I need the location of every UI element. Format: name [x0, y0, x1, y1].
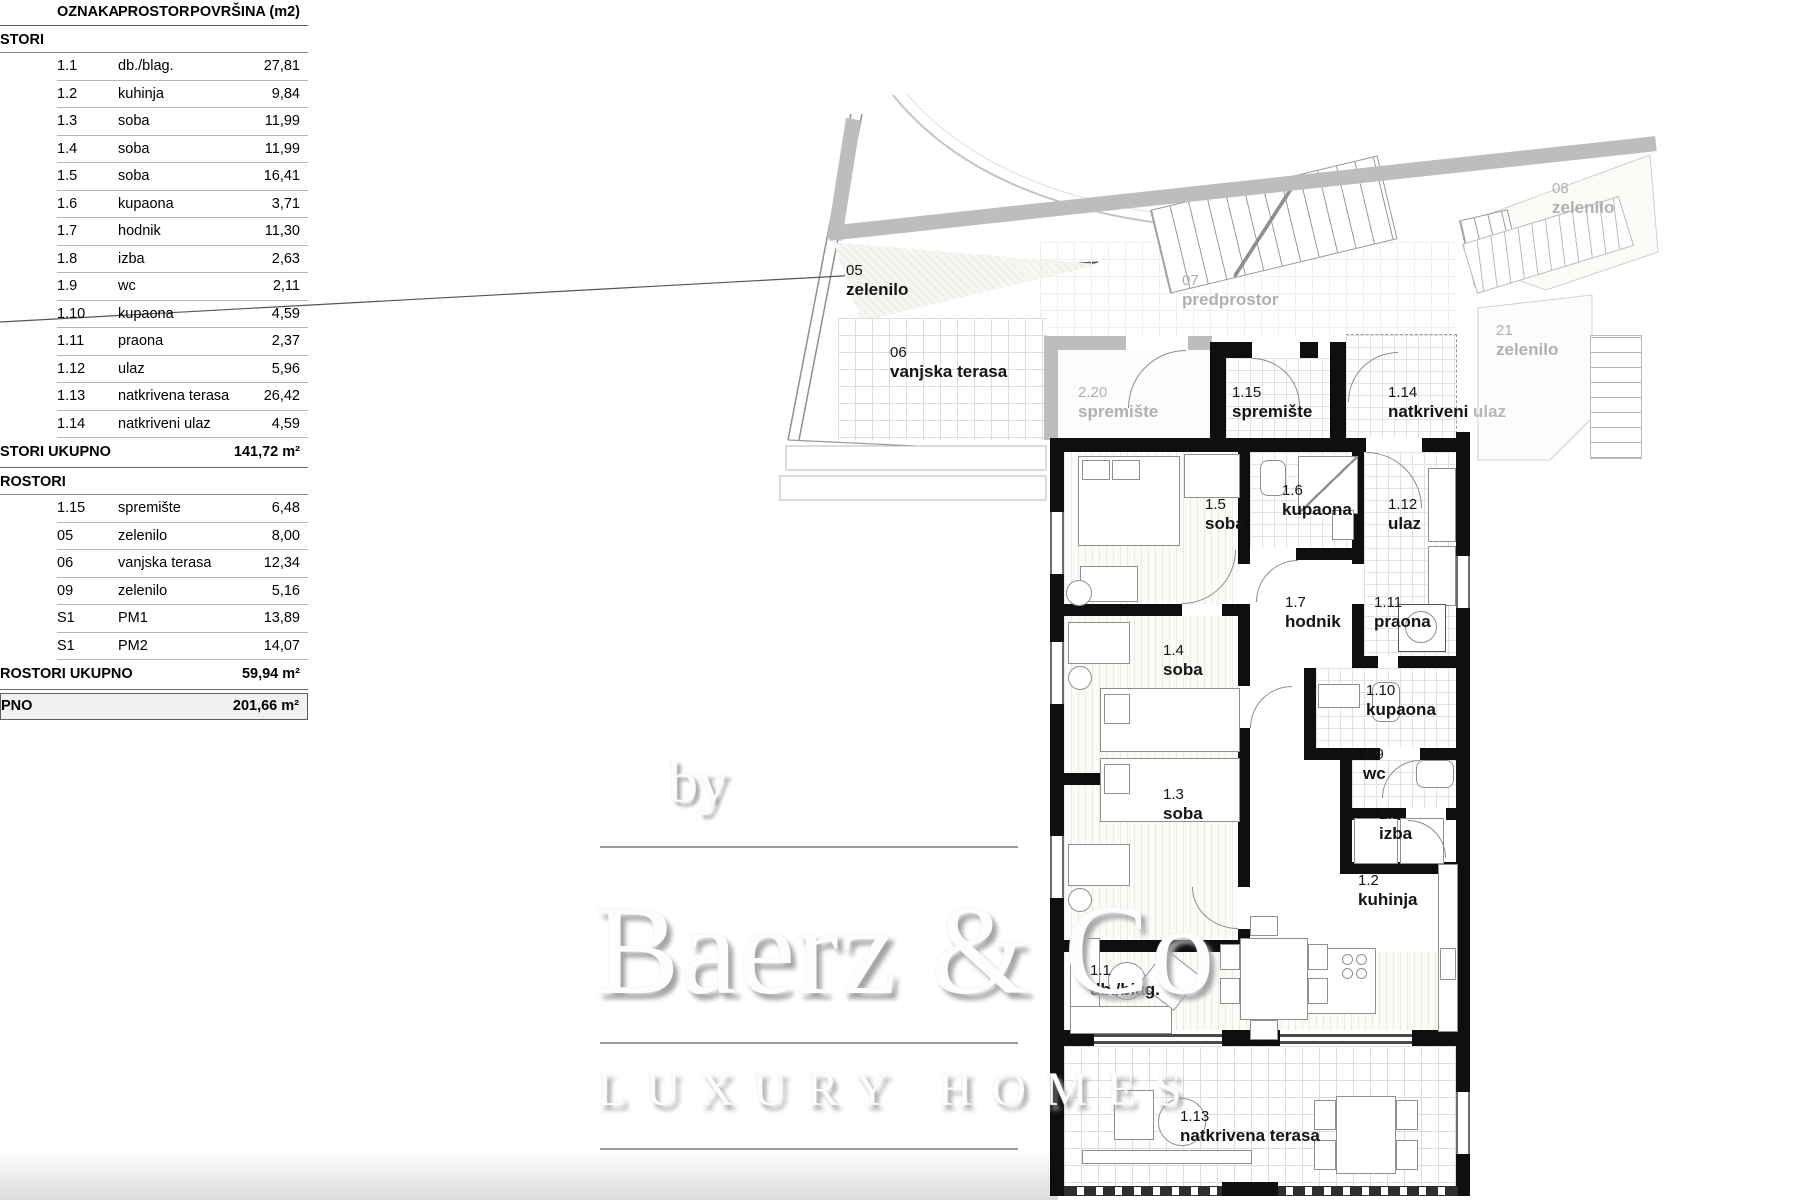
- cell-prostor: soba: [118, 136, 149, 164]
- section2-title: ROSTORI: [0, 468, 308, 495]
- furniture-dining-table: [1240, 938, 1308, 1020]
- room-code: 1.2: [1358, 872, 1418, 890]
- table-row: 1.2kuhinja9,84: [0, 81, 308, 109]
- grand-total-value: 201,66 m²: [233, 694, 299, 719]
- furniture-chair: [1220, 944, 1240, 970]
- header-oznaka: OZNAKA: [57, 4, 119, 20]
- cell-oznaka: 1.5: [57, 163, 77, 191]
- room-code: 1.8: [1379, 806, 1412, 824]
- section2-total-row: ROSTORI UKUPNO 59,94 m²: [0, 660, 308, 690]
- cell-povrsina: 27,81: [264, 53, 300, 81]
- table-row: 09zelenilo5,16: [0, 578, 308, 606]
- furniture-chair: [1220, 978, 1240, 1004]
- cell-povrsina: 11,30: [265, 218, 300, 246]
- door-gap: [1252, 342, 1300, 358]
- furniture-pillow: [1104, 694, 1130, 724]
- cell-oznaka: 1.1: [57, 53, 77, 81]
- room-name: spremište: [1232, 402, 1312, 421]
- cell-oznaka: 1.9: [57, 273, 77, 301]
- cell-oznaka: 09: [57, 578, 73, 606]
- wall-segment: [1364, 656, 1378, 668]
- table-header-row: OZNAKA PROSTOR POVRŠINA (m2): [0, 0, 308, 26]
- steps-right: [1590, 335, 1642, 459]
- furniture-desk: [1068, 622, 1130, 664]
- table-row: 1.1db./blag.27,81: [0, 53, 308, 81]
- room-name: zelenilo: [1496, 340, 1558, 359]
- cell-prostor: zelenilo: [118, 523, 167, 551]
- cell-povrsina: 3,71: [272, 191, 300, 219]
- room-name: soba: [1163, 804, 1203, 823]
- room-code: 1.10: [1366, 682, 1436, 700]
- window-glazing: [1094, 1041, 1222, 1044]
- wall-segment: [1064, 604, 1182, 616]
- cell-oznaka: S1: [57, 633, 75, 661]
- wall-pier: [1412, 1030, 1470, 1046]
- cell-oznaka: 1.13: [57, 383, 85, 411]
- furniture-desk: [1068, 844, 1130, 886]
- furniture-toilet: [1416, 760, 1454, 788]
- wall-segment: [1446, 808, 1456, 820]
- wall-segment: [1340, 760, 1352, 872]
- furniture-sink: [1318, 684, 1360, 708]
- cell-povrsina: 2,11: [273, 273, 300, 301]
- room-name: wc: [1363, 764, 1386, 783]
- room-code: 1.7: [1285, 594, 1341, 612]
- table-row: 06vanjska terasa12,34: [0, 550, 308, 578]
- room-label-21: 21zelenilo: [1496, 322, 1558, 361]
- cell-povrsina: 11,99: [265, 108, 300, 136]
- cell-oznaka: 1.14: [57, 411, 85, 439]
- grand-total-row: PNO 201,66 m²: [0, 693, 308, 720]
- cell-prostor: soba: [118, 163, 149, 191]
- cell-prostor: kupaona: [118, 301, 174, 329]
- room-label-14: 1.4soba: [1163, 642, 1203, 681]
- table-row: 1.13natkrivena terasa26,42: [0, 383, 308, 411]
- furniture-wardrobe: [1428, 468, 1456, 542]
- room-code: 1.6: [1282, 482, 1352, 500]
- room-label-07: 07predprostor: [1182, 272, 1278, 311]
- cell-prostor: natkriveni ulaz: [118, 411, 211, 439]
- room-code: 1.14: [1388, 384, 1506, 402]
- floorplan-page: { "table": { "headers": {"oznaka": "OZNA…: [0, 0, 1800, 1200]
- cell-prostor: ulaz: [118, 356, 145, 384]
- room-name: soba: [1205, 514, 1245, 533]
- room-name: spremište: [1078, 402, 1158, 421]
- furniture-sofa: [1070, 1006, 1172, 1034]
- cell-povrsina: 5,16: [272, 578, 300, 606]
- cell-prostor: hodnik: [118, 218, 161, 246]
- cell-oznaka: 1.15: [57, 495, 85, 523]
- header-povrsina: POVRŠINA (m2): [190, 4, 300, 20]
- room-name: natkrivena terasa: [1180, 1126, 1320, 1145]
- cell-prostor: kupaona: [118, 191, 174, 219]
- wall-segment: [1304, 668, 1316, 760]
- cell-prostor: wc: [118, 273, 136, 301]
- furniture-chair: [1396, 1100, 1418, 1130]
- cell-povrsina: 2,37: [272, 328, 300, 356]
- furniture-wardrobe: [1428, 546, 1456, 606]
- room-label-111: 1.11praona: [1374, 594, 1431, 633]
- window: [1050, 836, 1064, 898]
- furniture-chair: [1308, 944, 1328, 970]
- header-prostor: PROSTOR: [118, 4, 189, 20]
- cell-prostor: db./blag.: [118, 53, 174, 81]
- furniture-chair: [1250, 916, 1278, 936]
- room-label-12: 1.2kuhinja: [1358, 872, 1418, 911]
- cell-povrsina: 14,07: [264, 633, 300, 661]
- room-label-220: 2.20spremište: [1078, 384, 1158, 423]
- room-name-gray: ulaz: [1468, 402, 1506, 421]
- furniture-pillow: [1082, 460, 1110, 480]
- room-name: soba: [1163, 660, 1203, 679]
- cell-povrsina: 4,59: [272, 411, 300, 439]
- cell-oznaka: 1.3: [57, 108, 77, 136]
- cell-povrsina: 4,59: [272, 301, 300, 329]
- cell-prostor: PM1: [118, 605, 148, 633]
- table-row: 1.11praona2,37: [0, 328, 308, 356]
- room-label-17: 1.7hodnik: [1285, 594, 1341, 633]
- section2-total-value: 59,94 m²: [242, 660, 300, 689]
- furniture-wardrobe: [1184, 454, 1240, 498]
- gray-wall: [1044, 336, 1058, 440]
- furniture-chair: [1068, 666, 1092, 690]
- room-name: predprostor: [1182, 290, 1278, 309]
- cell-povrsina: 2,63: [272, 246, 300, 274]
- furniture-kitchen-sink: [1440, 948, 1456, 980]
- window: [1456, 1092, 1470, 1154]
- cell-prostor: kuhinja: [118, 81, 164, 109]
- window: [1050, 642, 1064, 704]
- wall-exterior-right: [1456, 432, 1470, 1056]
- wall-segment: [1222, 604, 1250, 616]
- room-label-15: 1.5soba: [1205, 496, 1245, 535]
- cell-prostor: izba: [118, 246, 145, 274]
- stove-burner: [1356, 968, 1367, 979]
- cell-oznaka: 05: [57, 523, 73, 551]
- room-name: db./blag.: [1090, 980, 1160, 999]
- cell-povrsina: 12,34: [264, 550, 300, 578]
- room-name: kuhinja: [1358, 890, 1418, 909]
- cell-oznaka: 1.4: [57, 136, 77, 164]
- table-row: 1.4soba11,99: [0, 136, 308, 164]
- table-row: 05zelenilo8,00: [0, 523, 308, 551]
- room-code: 07: [1182, 272, 1278, 290]
- room-name: izba: [1379, 824, 1412, 843]
- room-code: 05: [846, 262, 908, 280]
- wall-segment: [1352, 604, 1364, 668]
- room-label-13: 1.3soba: [1163, 786, 1203, 825]
- window: [1050, 512, 1064, 574]
- room-code: 1.1: [1090, 962, 1160, 980]
- wall-pier: [1222, 1182, 1278, 1196]
- room-name: vanjska terasa: [890, 362, 1007, 381]
- room-label-110: 1.10kupaona: [1366, 682, 1436, 721]
- room-label-11: 1.1db./blag.: [1090, 962, 1160, 1001]
- table-row: 1.12ulaz5,96: [0, 356, 308, 384]
- room-code: 1.3: [1163, 786, 1203, 804]
- furniture-pillow: [1112, 460, 1140, 480]
- section2-total-label: ROSTORI UKUPNO: [0, 660, 133, 689]
- cell-prostor: PM2: [118, 633, 148, 661]
- cell-oznaka: 1.11: [57, 328, 84, 356]
- furniture-chair: [1396, 1140, 1418, 1170]
- area-table: OZNAKA PROSTOR POVRŠINA (m2) STORI 1.1db…: [0, 0, 308, 720]
- furniture-chair: [1250, 1020, 1278, 1040]
- table-row: 1.15spremište6,48: [0, 495, 308, 523]
- room-name: natkriveni: [1388, 402, 1468, 421]
- cell-povrsina: 6,48: [272, 495, 300, 523]
- section1-total-value: 141,72 m²: [234, 438, 300, 467]
- room-code: 2.20: [1078, 384, 1158, 402]
- cell-prostor: natkrivena terasa: [118, 383, 229, 411]
- room-name: praona: [1374, 612, 1431, 631]
- room-label-06: 06vanjska terasa: [890, 344, 1007, 383]
- room-name: zelenilo: [846, 280, 908, 299]
- room-label-114: 1.14natkriveni ulaz: [1388, 384, 1506, 423]
- room-name: ulaz: [1388, 514, 1421, 533]
- room-label-115: 1.15spremište: [1232, 384, 1312, 423]
- table-row: S1PM214,07: [0, 633, 308, 661]
- table-row: 1.9wc2,11: [0, 273, 308, 301]
- room-label-19: 1.9wc: [1363, 746, 1386, 785]
- room-label-18: 1.8izba: [1379, 806, 1412, 845]
- cell-prostor: spremište: [118, 495, 181, 523]
- room-code: 06: [890, 344, 1007, 362]
- wall-segment: [1398, 656, 1456, 668]
- cell-oznaka: 1.12: [57, 356, 85, 384]
- window-glazing: [1280, 1034, 1412, 1037]
- window-glazing: [1094, 1034, 1222, 1037]
- furniture-bench: [1082, 1150, 1252, 1164]
- section1-title: STORI: [0, 26, 308, 53]
- cell-povrsina: 11,99: [265, 136, 300, 164]
- room-code: 1.12: [1388, 496, 1421, 514]
- table-row: 1.6kupaona3,71: [0, 191, 308, 219]
- section1-total-label: STORI UKUPNO: [0, 438, 111, 467]
- cell-prostor: vanjska terasa: [118, 550, 212, 578]
- room-label-112: 1.12ulaz: [1388, 496, 1421, 535]
- window: [1456, 556, 1470, 608]
- cell-povrsina: 13,89: [264, 605, 300, 633]
- cell-oznaka: 1.8: [57, 246, 77, 274]
- cell-oznaka: 1.6: [57, 191, 77, 219]
- cell-povrsina: 5,96: [272, 356, 300, 384]
- wall-segment: [1330, 342, 1346, 446]
- furniture-chair: [1114, 1090, 1154, 1140]
- table-row: 1.8izba2,63: [0, 246, 308, 274]
- cell-povrsina: 26,42: [264, 383, 300, 411]
- room-name: zelenilo: [1552, 198, 1614, 217]
- table-row: 1.7hodnik11,30: [0, 218, 308, 246]
- entry-door-gap: [1366, 438, 1422, 452]
- section1-total-row: STORI UKUPNO 141,72 m²: [0, 438, 308, 468]
- room-label-05: 05zelenilo: [846, 262, 908, 301]
- cell-povrsina: 8,00: [272, 523, 300, 551]
- cell-prostor: praona: [118, 328, 163, 356]
- furniture-pillow: [1104, 764, 1130, 794]
- room-code: 1.4: [1163, 642, 1203, 660]
- wall-segment: [1420, 748, 1456, 760]
- room-label-08: 08zelenilo: [1552, 180, 1614, 219]
- room-code: 08: [1552, 180, 1614, 198]
- stove-burner: [1342, 954, 1353, 965]
- furniture-chair: [1066, 580, 1092, 606]
- room-code: 1.15: [1232, 384, 1312, 402]
- cell-oznaka: 06: [57, 550, 73, 578]
- table-row: 1.3soba11,99: [0, 108, 308, 136]
- room-code: 1.5: [1205, 496, 1245, 514]
- table-row: 1.10kupaona4,59: [0, 301, 308, 329]
- room-label-113: 1.13natkrivena terasa: [1180, 1108, 1320, 1147]
- cell-povrsina: 16,41: [264, 163, 300, 191]
- stove-burner: [1356, 954, 1367, 965]
- table-row: 1.14natkriveni ulaz4,59: [0, 411, 308, 439]
- furniture-chair: [1308, 978, 1328, 1004]
- cell-oznaka: 1.7: [57, 218, 77, 246]
- room-code: 21: [1496, 322, 1558, 340]
- room-name: kupaona: [1282, 500, 1352, 519]
- grand-total-label: PNO: [1, 694, 32, 719]
- room-code: 1.13: [1180, 1108, 1320, 1126]
- furniture-chair: [1068, 888, 1092, 912]
- window-glazing: [1280, 1041, 1412, 1044]
- room-code: 1.11: [1374, 594, 1431, 612]
- gray-wall: [1188, 336, 1212, 350]
- cell-prostor: soba: [118, 108, 149, 136]
- cell-prostor: zelenilo: [118, 578, 167, 606]
- cell-oznaka: 1.2: [57, 81, 77, 109]
- cell-oznaka: 1.10: [57, 301, 85, 329]
- room-code: 1.9: [1363, 746, 1386, 764]
- stove-burner: [1342, 968, 1353, 979]
- wall-segment: [1238, 616, 1250, 686]
- cell-povrsina: 9,84: [272, 81, 300, 109]
- table-row: 1.5soba16,41: [0, 163, 308, 191]
- room-label-16: 1.6kupaona: [1282, 482, 1352, 521]
- bottom-gradient: [0, 1150, 1058, 1200]
- room-name: kupaona: [1366, 700, 1436, 719]
- table-row: S1PM113,89: [0, 605, 308, 633]
- furniture-terrace-table: [1336, 1096, 1396, 1174]
- cell-oznaka: S1: [57, 605, 75, 633]
- room-name: hodnik: [1285, 612, 1341, 631]
